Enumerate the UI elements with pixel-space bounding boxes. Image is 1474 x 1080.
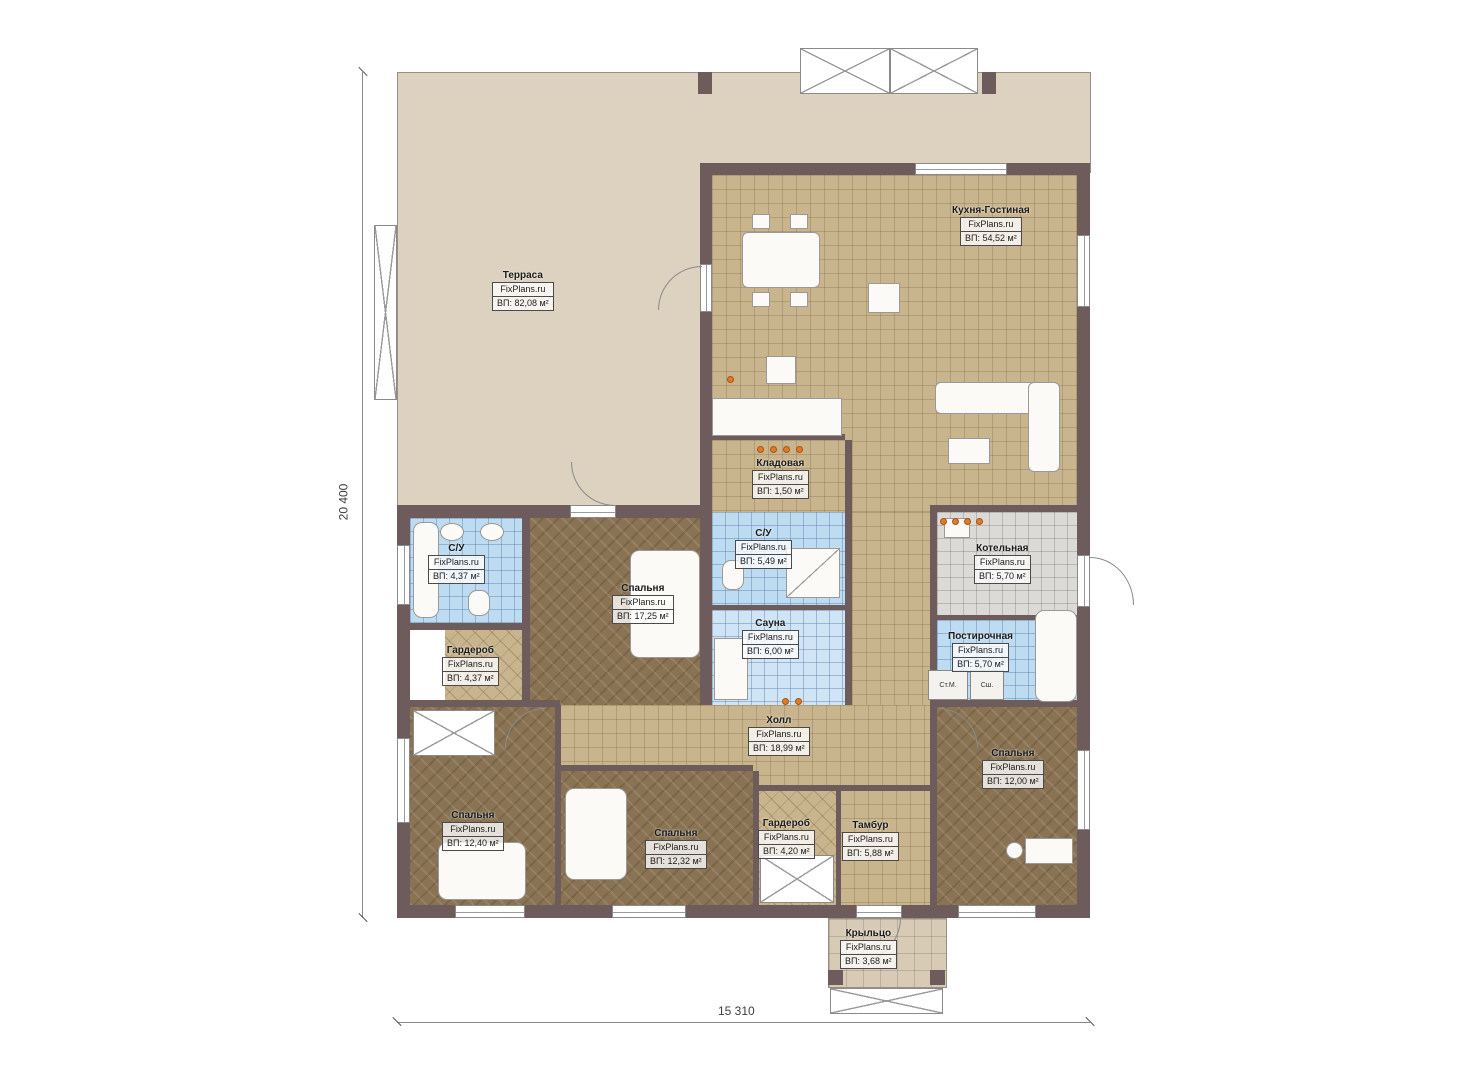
furniture-desk [1025, 838, 1073, 864]
door-opening [1077, 555, 1090, 607]
furniture-chair [790, 292, 808, 307]
fixture-dot [770, 446, 777, 453]
room-name: Спальня [451, 810, 494, 822]
room-area: ВП: 18,99 м² [749, 742, 809, 755]
furniture-shower [786, 548, 840, 598]
door-opening [570, 505, 616, 518]
furniture-kitchen-counter [712, 398, 842, 436]
fixture-dot [964, 518, 971, 525]
partition [555, 705, 561, 905]
room-name: Спальня [654, 828, 697, 840]
furniture-fridge [766, 356, 796, 384]
room-label-hall: Холл FixPlans.ruВП: 18,99 м² [748, 715, 810, 756]
door-opening [856, 905, 902, 918]
brand-label: FixPlans.ru [759, 831, 814, 845]
room-area: ВП: 4,37 м² [443, 672, 498, 685]
furniture-chair [1006, 842, 1023, 859]
wall-kitchen-top [700, 163, 1090, 175]
brand-label: FixPlans.ru [443, 823, 503, 837]
partition [845, 440, 852, 705]
brand-label: FixPlans.ru [736, 541, 791, 555]
room-label-wardrobe2: Гардероб FixPlans.ruВП: 4,20 м² [758, 818, 815, 859]
furniture-chair [752, 292, 770, 307]
washing-machine-label: Ст.М. [939, 682, 956, 689]
brand-label: FixPlans.ru [975, 556, 1030, 570]
room-area: ВП: 12,40 м² [443, 837, 503, 850]
dryer-label: Сш. [981, 682, 994, 689]
room-label-terrace: Терраса FixPlans.ruВП: 82,08 м² [492, 270, 554, 311]
partition [753, 785, 936, 791]
partition [712, 605, 845, 610]
brand-label: FixPlans.ru [743, 631, 798, 645]
room-area: ВП: 12,00 м² [983, 775, 1043, 788]
furniture-sink [480, 523, 504, 541]
room-area: ВП: 3,68 м² [841, 955, 896, 968]
room-label-bedroom3: Спальня FixPlans.ruВП: 12,40 м² [442, 810, 504, 851]
fixture-dot [976, 518, 983, 525]
wall-terrace-bottom [397, 505, 712, 518]
terrace-post [982, 72, 996, 94]
window-symbol [890, 48, 978, 94]
brand-label: FixPlans.ru [749, 728, 809, 742]
brand-label: FixPlans.ru [753, 471, 808, 485]
furniture-chair [790, 214, 808, 229]
room-label-boiler: Котельная FixPlans.ruВП: 5,70 м² [974, 543, 1031, 584]
closet-symbol [760, 855, 834, 903]
dimension-tick [358, 67, 367, 76]
room-name: Тамбур [852, 820, 888, 832]
door-arc [1090, 557, 1134, 605]
room-label-vestibule: Тамбур FixPlans.ruВП: 5,88 м² [842, 820, 899, 861]
room-area: ВП: 5,88 м² [843, 847, 898, 860]
room-area: ВП: 6,00 м² [743, 645, 798, 658]
room-label-wc1: С/У FixPlans.ruВП: 4,37 м² [428, 543, 485, 584]
window [958, 905, 1036, 918]
fixture-dot [727, 376, 734, 383]
room-area: ВП: 12,32 м² [646, 855, 706, 868]
room-name: Гардероб [447, 645, 494, 657]
window [1077, 235, 1090, 307]
fixture-dot [783, 446, 790, 453]
room-name: Кухня-Гостиная [952, 205, 1030, 217]
room-label-porch: Крыльцо FixPlans.ruВП: 3,68 м² [840, 928, 897, 969]
wall-kitchen-left [700, 163, 712, 512]
room-label-bedroom2: Спальня FixPlans.ruВП: 12,00 м² [982, 748, 1044, 789]
fixture-dot [940, 518, 947, 525]
dimension-tick [358, 913, 367, 922]
dimension-label-vertical: 20 400 [336, 484, 350, 521]
brand-label: FixPlans.ru [493, 283, 553, 297]
brand-label: FixPlans.ru [613, 596, 673, 610]
window [612, 905, 686, 918]
furniture-coffee-table [948, 438, 990, 464]
brand-label: FixPlans.ru [646, 841, 706, 855]
room-area: ВП: 5,70 м² [953, 658, 1008, 671]
brand-label: FixPlans.ru [843, 833, 898, 847]
floor-plan-canvas: Ст.М. Сш. Терраса FixPlans.ruВП: 82,08 м… [0, 0, 1474, 1080]
room-name: Терраса [503, 270, 543, 282]
furniture-sink [440, 523, 464, 541]
window-symbol [374, 225, 397, 400]
furniture-dining-table [742, 232, 820, 288]
window [397, 738, 410, 823]
room-name: Кладовая [756, 458, 804, 470]
room-name: Спальня [991, 748, 1034, 760]
room-name: С/У [755, 528, 771, 540]
hall-corridor-floor [852, 512, 930, 705]
room-name: Сауна [755, 618, 785, 630]
furniture-toilet [468, 590, 490, 616]
brand-label: FixPlans.ru [443, 658, 498, 672]
room-area: ВП: 5,49 м² [736, 555, 791, 568]
room-area: ВП: 4,37 м² [429, 570, 484, 583]
partition [410, 700, 560, 707]
partition [930, 705, 937, 905]
fixture-dot [757, 446, 764, 453]
dryer: Сш. [970, 670, 1004, 700]
room-name: Гардероб [763, 818, 810, 830]
dimension-line-vertical [362, 72, 363, 918]
room-label-wardrobe1: Гардероб FixPlans.ruВП: 4,37 м² [442, 645, 499, 686]
room-area: ВП: 4,20 м² [759, 845, 814, 858]
partition [700, 512, 712, 705]
room-name: С/У [448, 543, 464, 555]
window-symbol [830, 988, 943, 1014]
window-symbol [800, 48, 890, 94]
room-label-sauna: Сауна FixPlans.ruВП: 6,00 м² [742, 618, 799, 659]
furniture-island [868, 283, 900, 313]
room-name: Холл [766, 715, 791, 727]
room-name: Постирочная [948, 631, 1013, 643]
brand-label: FixPlans.ru [841, 941, 896, 955]
window [1077, 750, 1090, 830]
closet-symbol [413, 710, 495, 756]
room-area: ВП: 17,25 м² [613, 610, 673, 623]
furniture-bed [565, 788, 627, 880]
window [455, 905, 525, 918]
terrace-post [698, 72, 712, 94]
partition [937, 505, 1077, 512]
room-name: Спальня [621, 583, 664, 595]
furniture-bathtub [1035, 610, 1077, 702]
dimension-label-horizontal: 15 310 [718, 1004, 755, 1018]
room-area: ВП: 1,50 м² [753, 485, 808, 498]
room-area: ВП: 54,52 м² [961, 232, 1021, 245]
washing-machine: Ст.М. [928, 670, 968, 700]
room-label-wc2: С/У FixPlans.ruВП: 5,49 м² [735, 528, 792, 569]
room-area: ВП: 5,70 м² [975, 570, 1030, 583]
furniture-sofa-arm [1028, 382, 1060, 472]
brand-label: FixPlans.ru [429, 556, 484, 570]
brand-label: FixPlans.ru [953, 644, 1008, 658]
porch-post [828, 970, 843, 985]
fixture-dot [782, 698, 789, 705]
window [915, 163, 1007, 175]
brand-label: FixPlans.ru [983, 761, 1043, 775]
room-label-kitchen: Кухня-Гостиная FixPlans.ruВП: 54,52 м² [952, 205, 1030, 246]
room-label-laundry: Постирочная FixPlans.ruВП: 5,70 м² [948, 631, 1013, 672]
room-area: ВП: 82,08 м² [493, 297, 553, 310]
partition [836, 791, 841, 905]
window [397, 545, 410, 605]
room-name: Котельная [976, 543, 1028, 555]
furniture-chair [752, 214, 770, 229]
room-label-bedroom4: Спальня FixPlans.ruВП: 12,32 м² [645, 828, 707, 869]
partition [522, 518, 530, 705]
fixture-dot [796, 446, 803, 453]
fixture-dot [952, 518, 959, 525]
porch-post [930, 970, 945, 985]
room-label-storage: Кладовая FixPlans.ruВП: 1,50 м² [752, 458, 809, 499]
dimension-line-horizontal [397, 1022, 1090, 1023]
brand-label: FixPlans.ru [961, 218, 1021, 232]
room-name: Крыльцо [846, 928, 892, 940]
partition [410, 623, 522, 630]
room-label-bedroom1: Спальня FixPlans.ruВП: 17,25 м² [612, 583, 674, 624]
partition [560, 765, 753, 771]
fixture-dot [795, 698, 802, 705]
